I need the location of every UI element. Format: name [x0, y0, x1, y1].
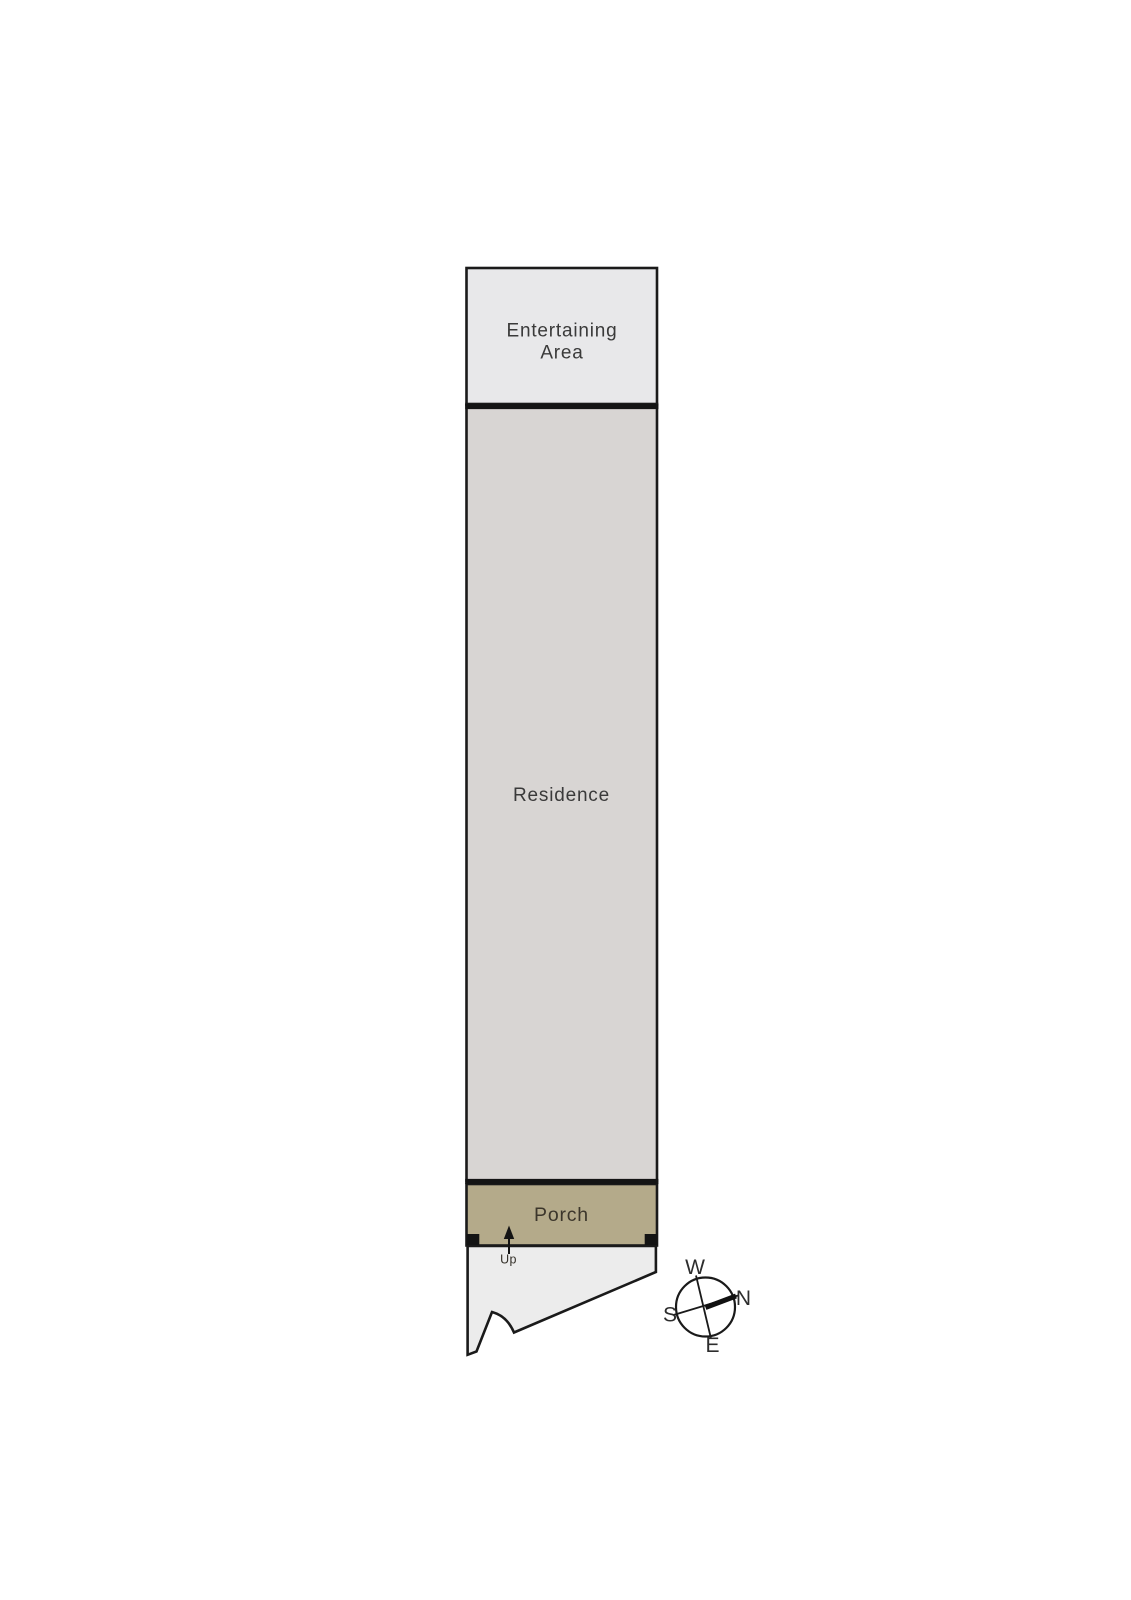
porch-post-left: [467, 1234, 480, 1245]
compass-north-label: N: [736, 1287, 751, 1310]
land-parcel-shape: [468, 1246, 656, 1355]
porch-post-right: [645, 1234, 658, 1245]
compass-north-needle: [706, 1296, 737, 1308]
porch-label: Porch: [534, 1204, 589, 1226]
floor-plan-page: Entertaining Area Residence Porch Up W N…: [0, 0, 1131, 1600]
residence-label: Residence: [513, 785, 610, 806]
entertaining-area-label-line2: Area: [540, 343, 583, 364]
compass-rose: W N S E: [663, 1256, 751, 1357]
floor-plan-canvas: Entertaining Area Residence Porch Up W N…: [0, 0, 1131, 1600]
entertaining-area-label-line1: Entertaining: [506, 321, 617, 342]
compass-east-label: E: [705, 1334, 719, 1357]
compass-west-label: W: [685, 1256, 705, 1279]
up-label: Up: [500, 1253, 517, 1267]
compass-south-label: S: [663, 1304, 677, 1327]
